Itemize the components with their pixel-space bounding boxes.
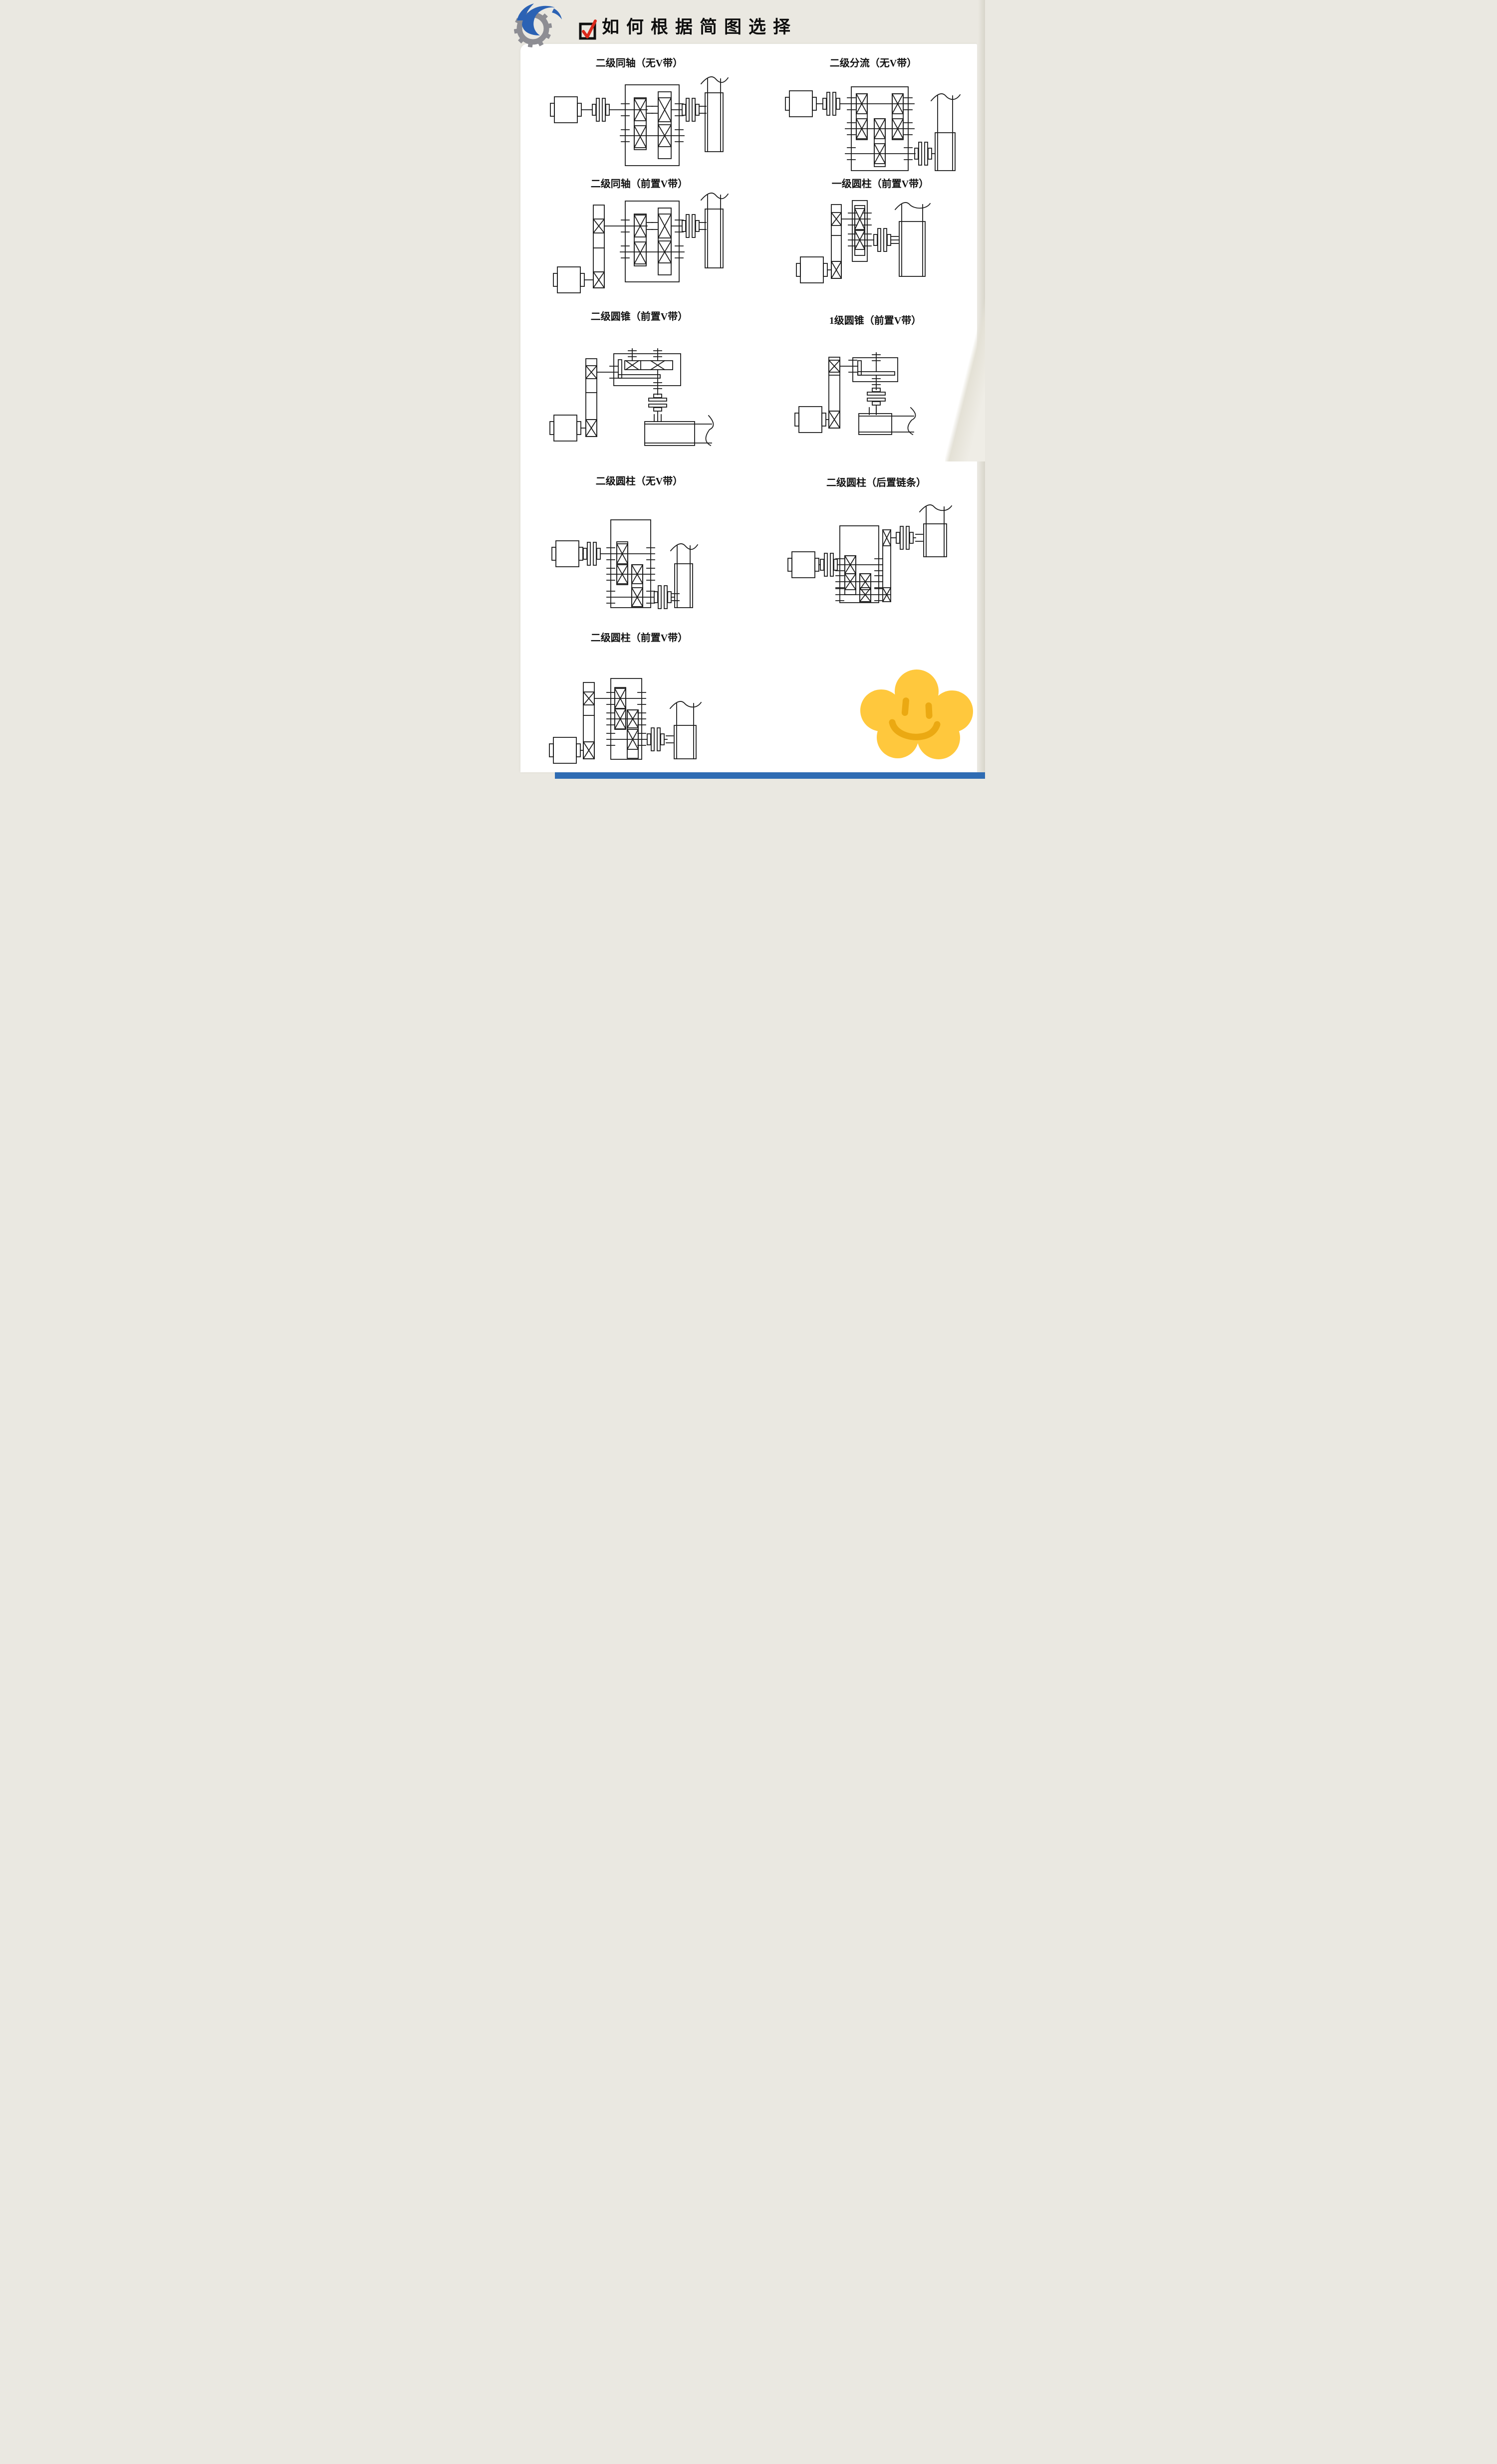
motor xyxy=(788,552,819,578)
chain-drive xyxy=(883,530,891,602)
shaft-coupling xyxy=(654,586,671,609)
diagram-label: 二级圆柱（后置链条） xyxy=(815,474,937,489)
driven-machine xyxy=(670,701,701,759)
schematic-two-stage-cylindrical-chain xyxy=(788,499,953,606)
motor xyxy=(796,257,827,283)
v-belt-pulley xyxy=(829,357,840,375)
gear-shaft xyxy=(634,98,646,150)
gear-shaft xyxy=(627,710,638,758)
diagram-label: 二级同轴（前置V带） xyxy=(586,176,693,190)
schematic-single-stage-bevel-vbelt xyxy=(794,352,946,454)
schematic-two-stage-cylindrical xyxy=(552,514,697,614)
motor xyxy=(553,267,584,293)
driven-machine xyxy=(920,505,952,557)
logo-swoosh-tip xyxy=(552,8,562,19)
flower-petals xyxy=(860,670,973,759)
shaft-coupling xyxy=(896,526,913,549)
coaxial-gap xyxy=(647,106,657,113)
gearbox xyxy=(853,358,898,382)
shaft-coupling xyxy=(867,388,885,405)
gearbox xyxy=(840,526,879,603)
gear-swirl-logo-icon xyxy=(514,0,567,47)
gear-shaft xyxy=(658,92,671,159)
smiley-flower-doodle xyxy=(853,668,984,760)
red-check-checkbox-icon xyxy=(578,16,599,41)
diagram-label: 二级圆柱（无V带） xyxy=(587,473,692,487)
gear-shaft xyxy=(845,556,856,595)
shafts xyxy=(826,353,876,420)
v-belt-pulley xyxy=(831,205,841,235)
page-title: 如何根据简图选择 xyxy=(602,13,797,38)
v-belt-pulley xyxy=(593,272,604,288)
header: 如何根据简图选择 xyxy=(512,0,985,44)
motor xyxy=(550,415,581,441)
shaft-coupling xyxy=(583,542,600,565)
shaft-coupling xyxy=(823,92,840,115)
diagram-label: 1级圆锥（前置V带） xyxy=(822,312,928,327)
schematic-two-stage-bevel-vbelt xyxy=(547,347,717,454)
gear-shaft xyxy=(658,208,671,275)
shaft-coupling xyxy=(682,98,699,121)
gear-shaft xyxy=(874,119,885,167)
schematic-two-stage-coaxial xyxy=(549,75,724,177)
driven-machine xyxy=(645,416,714,446)
schematic-two-stage-coaxial-vbelt xyxy=(549,191,724,297)
shaft-coupling xyxy=(592,98,609,121)
coaxial-gap xyxy=(647,223,657,229)
driven-machine xyxy=(701,77,728,152)
driven-machine xyxy=(671,544,698,608)
driven-machine xyxy=(701,193,728,268)
v-belt-pulley xyxy=(586,420,597,437)
v-belt xyxy=(831,235,841,261)
shaft-coupling xyxy=(649,394,667,411)
motor xyxy=(795,407,826,433)
bottom-accent-bar xyxy=(555,772,985,779)
motor xyxy=(549,737,580,763)
diagram-label: 二级圆锥（前置V带） xyxy=(586,308,693,323)
gear-shaft xyxy=(632,565,643,607)
v-belt-pulley xyxy=(831,261,841,278)
diagram-label: 二级分流（无V带） xyxy=(820,55,926,69)
v-belt xyxy=(829,375,840,411)
shaft-coupling xyxy=(682,215,699,237)
page: 如何根据简图选择 二级同轴（无V带） 二级分流（无V带） 二级同轴（前置V带） … xyxy=(512,0,985,779)
driven-machine xyxy=(931,94,960,171)
v-belt-pulley xyxy=(829,411,840,428)
gear-shaft xyxy=(860,574,871,602)
gear-shaft xyxy=(615,687,626,729)
diagram-label: 二级同轴（无V带） xyxy=(587,55,692,69)
v-belt-pulley xyxy=(586,359,597,393)
v-belt xyxy=(593,248,604,272)
gear-shaft xyxy=(892,94,903,140)
schematic-two-stage-cylindrical-vbelt xyxy=(548,672,698,770)
shaft-coupling xyxy=(915,142,932,165)
shaft-joint xyxy=(916,534,923,541)
driven-machine xyxy=(895,203,930,276)
gear-shaft xyxy=(625,361,673,370)
diagram-label: 二级圆柱（前置V带） xyxy=(587,630,692,644)
schematic-single-stage-vbelt xyxy=(796,198,936,290)
shaft-coupling xyxy=(820,553,837,576)
v-belt-pulley xyxy=(583,682,594,715)
gear-shaft xyxy=(617,542,628,585)
v-belt-pulley xyxy=(583,742,594,759)
shaft-coupling xyxy=(874,228,891,251)
page-fold-shading xyxy=(945,277,985,461)
motor xyxy=(550,97,581,123)
shaft-coupling xyxy=(647,728,664,751)
v-belt xyxy=(583,715,594,742)
gear-shaft xyxy=(856,94,867,140)
v-belt-pulley xyxy=(593,205,604,248)
driven-machine xyxy=(859,408,916,435)
schematic-two-stage-split xyxy=(785,81,958,178)
v-belt xyxy=(586,393,597,420)
motor xyxy=(552,541,583,567)
gear-shaft xyxy=(634,214,646,266)
shafts xyxy=(581,110,684,136)
motor xyxy=(785,91,816,117)
